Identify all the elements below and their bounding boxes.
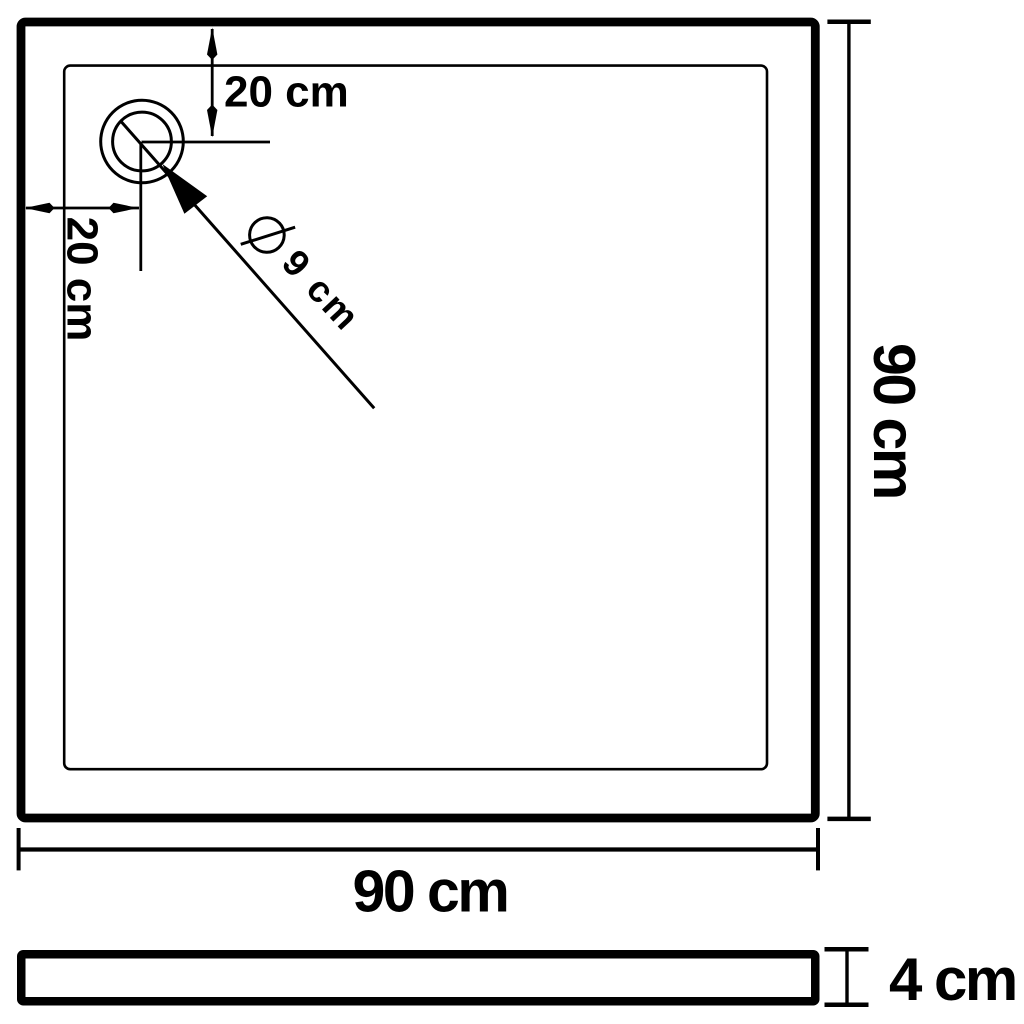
svg-text:20 cm: 20 cm <box>224 68 349 117</box>
svg-text:90 cm: 90 cm <box>861 343 927 498</box>
svg-text:20 cm: 20 cm <box>58 217 107 342</box>
svg-text:4 cm: 4 cm <box>889 946 1016 1013</box>
svg-text:90 cm: 90 cm <box>353 859 508 925</box>
